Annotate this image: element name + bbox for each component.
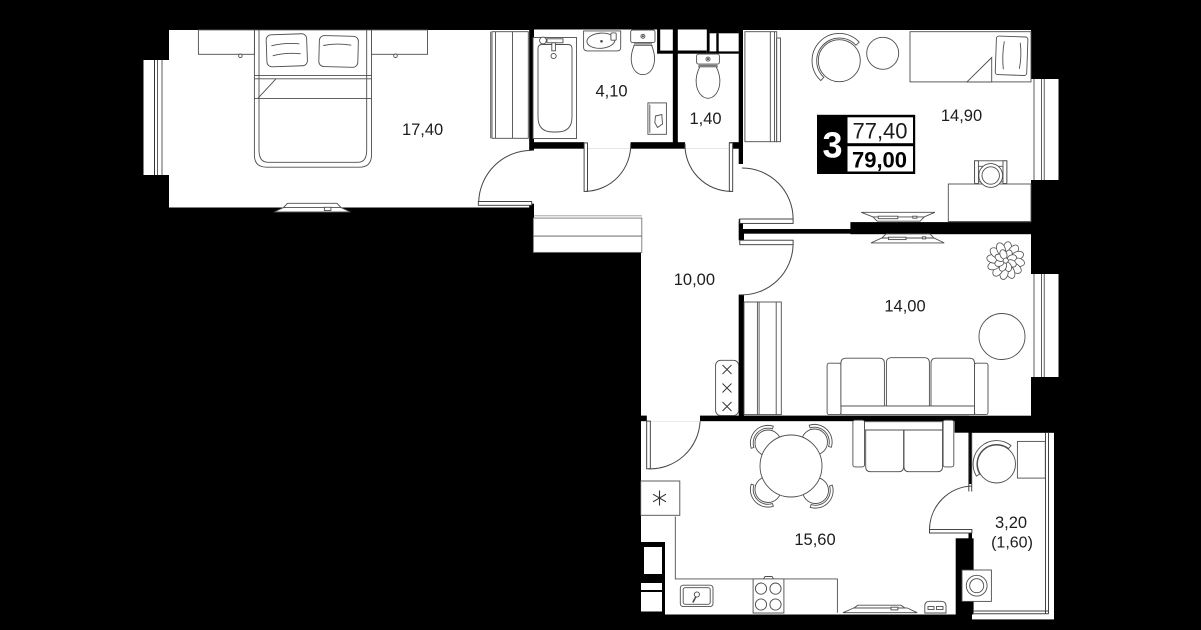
svg-text:4,10: 4,10 [595,82,627,100]
svg-text:10,00: 10,00 [674,271,715,289]
svg-text:3,20: 3,20 [995,514,1027,532]
svg-text:15,60: 15,60 [794,531,835,549]
svg-text:17,40: 17,40 [402,121,443,139]
svg-text:1,40: 1,40 [689,110,721,128]
svg-text:(1,60): (1,60) [991,535,1033,552]
svg-text:77,40: 77,40 [852,118,907,143]
svg-text:79,00: 79,00 [852,148,907,173]
svg-text:14,00: 14,00 [884,297,925,315]
svg-text:14,90: 14,90 [941,107,982,125]
svg-text:3: 3 [822,125,842,166]
